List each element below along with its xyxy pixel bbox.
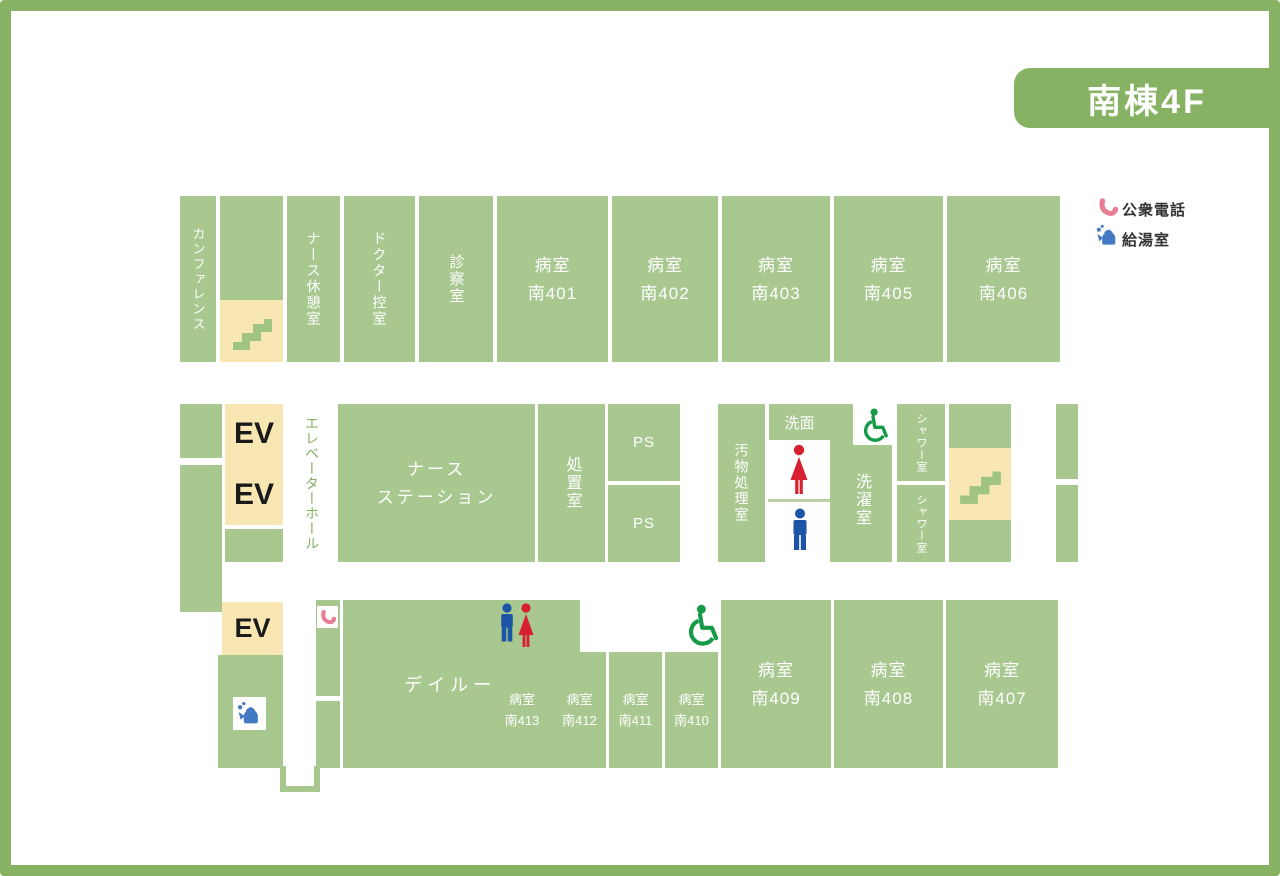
phone-handset-icon bbox=[1098, 197, 1118, 217]
legend-kettle-label: 給湯室 bbox=[1122, 229, 1170, 250]
room-ward-413: 病室 南413 bbox=[495, 652, 549, 768]
wall-strip-left bbox=[180, 404, 222, 612]
stairs-icon bbox=[220, 300, 283, 362]
elevator-label: EV bbox=[234, 478, 274, 512]
wall-strip-dayroom bbox=[316, 600, 340, 768]
room-nurse-station: ナース ステーション bbox=[338, 404, 535, 562]
room-ward-407: 病室 南407 bbox=[946, 600, 1058, 768]
wheelchair-icon bbox=[853, 404, 892, 445]
female-icon bbox=[786, 444, 812, 496]
room-shower-top: シャワー室 bbox=[897, 404, 945, 481]
stairs-icon bbox=[949, 448, 1011, 520]
room-ward-409: 病室 南409 bbox=[721, 600, 831, 768]
room-ward-403: 病室 南403 bbox=[722, 196, 830, 362]
kettle-icon bbox=[1095, 223, 1120, 248]
room-ps-bottom: PS bbox=[608, 485, 680, 562]
room-exam: 診察室 bbox=[419, 196, 493, 362]
elevator-bottom: EV bbox=[222, 602, 283, 655]
phone-handset-icon bbox=[317, 606, 338, 628]
room-conference: カンファレンス bbox=[180, 196, 216, 362]
restroom-male-female-icon bbox=[497, 603, 541, 651]
room-nurse-rest: ナース休憩室 bbox=[287, 196, 340, 362]
male-icon bbox=[789, 508, 811, 558]
laundry-label: 洗濯室 bbox=[849, 473, 873, 527]
room-ward-401: 病室 南401 bbox=[497, 196, 608, 362]
kettle-icon bbox=[233, 697, 266, 730]
room-ward-408: 病室 南408 bbox=[834, 600, 943, 768]
room-ps-top: PS bbox=[608, 404, 680, 481]
ward-label: 病室 bbox=[535, 257, 571, 274]
room-ward-402: 病室 南402 bbox=[612, 196, 718, 362]
room-washbasin-label: 洗面 bbox=[769, 404, 830, 440]
room-stairs-east bbox=[949, 404, 1011, 562]
door-gap bbox=[1056, 479, 1078, 485]
room-shower-bottom: シャワー室 bbox=[897, 485, 945, 562]
room-doctor-lounge: ドクター控室 bbox=[344, 196, 415, 362]
room-laundry: 洗濯室 bbox=[830, 404, 892, 562]
room-ward-405: 病室 南405 bbox=[834, 196, 943, 362]
room-stairs-northwest bbox=[220, 196, 283, 362]
wheelchair-icon bbox=[681, 602, 719, 648]
elevator-hall-label: エレベーターホール bbox=[285, 404, 339, 562]
door-gap bbox=[180, 458, 222, 465]
restroom-divider bbox=[768, 499, 830, 502]
room-treatment: 処置室 bbox=[538, 404, 605, 562]
room-ward-412: 病室 南412 bbox=[553, 652, 606, 768]
exit-vestibule bbox=[280, 766, 320, 792]
floor-title: 南棟4F bbox=[1014, 68, 1280, 128]
room-ward-406: 病室 南406 bbox=[947, 196, 1060, 362]
legend-phone-label: 公衆電話 bbox=[1122, 199, 1186, 220]
room-ward-410: 病室 南410 bbox=[665, 652, 718, 768]
elevator-label: EV bbox=[234, 417, 274, 451]
room-ward-411: 病室 南411 bbox=[609, 652, 662, 768]
ward-number: 南401 bbox=[528, 285, 577, 302]
room-hot-water bbox=[218, 655, 283, 768]
wall-strip-right bbox=[1056, 404, 1078, 562]
room-waste: 汚物処理室 bbox=[718, 404, 765, 562]
floor-plan-page: 南棟4F 公衆電話 給湯室 カンファレンス ナース休憩室 ドクター控室 診察室 … bbox=[0, 0, 1280, 876]
door-gap bbox=[316, 696, 340, 701]
wall-below-elevator bbox=[225, 529, 283, 562]
elevator-mid: EV EV bbox=[225, 404, 283, 525]
